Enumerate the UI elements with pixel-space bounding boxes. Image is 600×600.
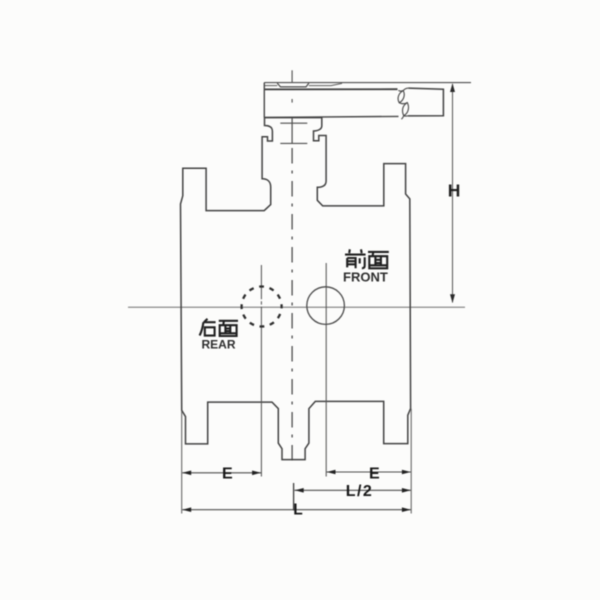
svg-text:E: E xyxy=(222,466,233,483)
svg-text:E: E xyxy=(369,465,380,482)
svg-text:H: H xyxy=(448,181,461,201)
svg-text:REAR: REAR xyxy=(202,338,236,352)
svg-text:L: L xyxy=(293,501,302,518)
svg-text:FRONT: FRONT xyxy=(343,270,388,285)
svg-text:L/2: L/2 xyxy=(346,483,373,500)
